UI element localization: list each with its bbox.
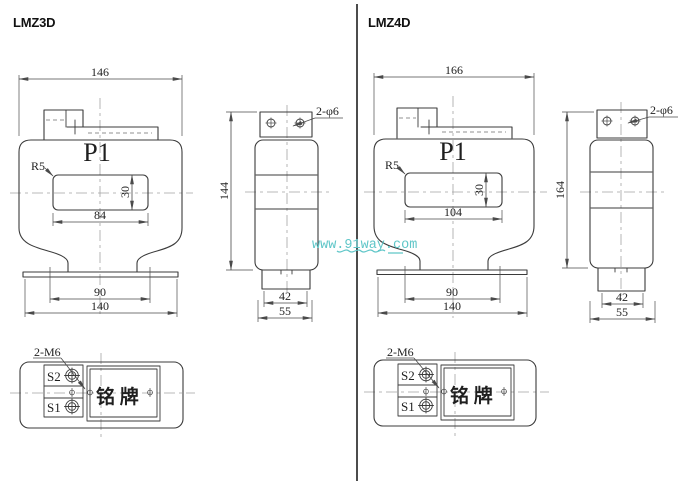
base-plate xyxy=(23,272,178,277)
dim-window-height: 30 xyxy=(118,175,132,210)
holes-label: 2-φ6 xyxy=(316,104,339,118)
dim-window-width: 84 xyxy=(53,208,148,226)
r5-leader xyxy=(398,167,405,174)
watermark: www.91way.com xyxy=(312,238,417,253)
p1-label: P1 xyxy=(439,137,466,166)
screws-leader xyxy=(414,358,439,388)
screws-label: 2-M6 xyxy=(387,345,414,359)
nameplate-label: 铭 牌 xyxy=(96,385,139,408)
watermark-text: www.91way.com xyxy=(312,238,417,253)
r5-label: R5 xyxy=(31,159,45,173)
svg-text:42: 42 xyxy=(279,289,291,303)
dim-window-width: 104 xyxy=(405,205,502,223)
technical-drawing: LMZ3D P1 R5 xyxy=(0,0,692,484)
screws-label: 2-M6 xyxy=(34,345,61,359)
r5-label: R5 xyxy=(385,158,399,172)
base-plate xyxy=(377,270,527,275)
lmz3d-bottom-view: S2 S1 铭 牌 2-M6 xyxy=(10,345,195,437)
screw-s2 xyxy=(65,368,80,383)
screw-s2 xyxy=(419,367,434,382)
top-terminal-block xyxy=(44,110,158,140)
dim-height: 164 xyxy=(553,112,594,268)
svg-text:144: 144 xyxy=(217,182,231,200)
svg-text:140: 140 xyxy=(443,299,461,313)
top-terminal-block xyxy=(397,108,512,138)
dim-window-height: 30 xyxy=(472,173,486,207)
lmz4d-side-view: 2-φ6 164 42 xyxy=(553,102,678,323)
svg-text:166: 166 xyxy=(445,63,463,77)
lmz3d-side-view: 2-φ6 144 42 xyxy=(217,104,343,322)
svg-text:30: 30 xyxy=(118,186,132,198)
mounting-hole-left xyxy=(266,118,277,129)
mounting-hole-left xyxy=(602,116,613,127)
svg-text:84: 84 xyxy=(94,208,106,222)
svg-text:164: 164 xyxy=(553,181,567,199)
svg-text:90: 90 xyxy=(94,285,106,299)
s2-label: S2 xyxy=(47,369,61,384)
svg-text:90: 90 xyxy=(446,285,458,299)
s1-label: S1 xyxy=(401,399,415,414)
body-side-outline xyxy=(590,140,653,268)
window-opening xyxy=(53,175,148,210)
lmz3d-drawing: LMZ3D P1 R5 xyxy=(10,15,343,437)
dim-base-depth: 55 xyxy=(590,301,655,323)
r5-leader xyxy=(45,168,53,176)
screw-s1 xyxy=(65,399,80,414)
holes-label: 2-φ6 xyxy=(650,103,673,117)
svg-text:104: 104 xyxy=(444,205,462,219)
body-side-outline xyxy=(255,140,318,270)
drawing-title-lmz4d: LMZ4D xyxy=(368,15,410,30)
window-opening xyxy=(405,173,502,207)
nameplate-label: 铭 牌 xyxy=(450,384,493,407)
s1-label: S1 xyxy=(47,400,61,415)
dim-mounting-span: 90 xyxy=(405,266,500,303)
dim-height: 144 xyxy=(217,112,257,270)
lmz4d-drawing: LMZ4D P1 R5 166 xyxy=(364,15,678,436)
svg-text:30: 30 xyxy=(472,184,486,196)
drawing-canvas: LMZ3D P1 R5 xyxy=(0,0,692,484)
screw-s1 xyxy=(419,398,434,413)
s2-label: S2 xyxy=(401,368,415,383)
drawing-title-lmz3d: LMZ3D xyxy=(13,15,55,30)
screws-leader xyxy=(61,358,85,389)
svg-text:55: 55 xyxy=(616,305,628,319)
svg-text:55: 55 xyxy=(279,304,291,318)
p1-label: P1 xyxy=(83,138,110,167)
lmz4d-front-view: P1 R5 166 30 104 xyxy=(364,63,547,318)
svg-text:146: 146 xyxy=(91,65,109,79)
svg-text:140: 140 xyxy=(91,299,109,313)
secondary-terminal-block xyxy=(260,112,312,137)
foot-outline xyxy=(262,270,310,289)
svg-text:42: 42 xyxy=(616,290,628,304)
dim-top-width: 166 xyxy=(374,63,534,135)
lmz3d-front-view: P1 R5 146 30 84 xyxy=(10,65,193,318)
lmz4d-bottom-view: S2 S1 铭 牌 2-M6 xyxy=(364,345,549,436)
mounting-hole-right xyxy=(295,118,306,129)
foot-outline xyxy=(598,268,645,291)
